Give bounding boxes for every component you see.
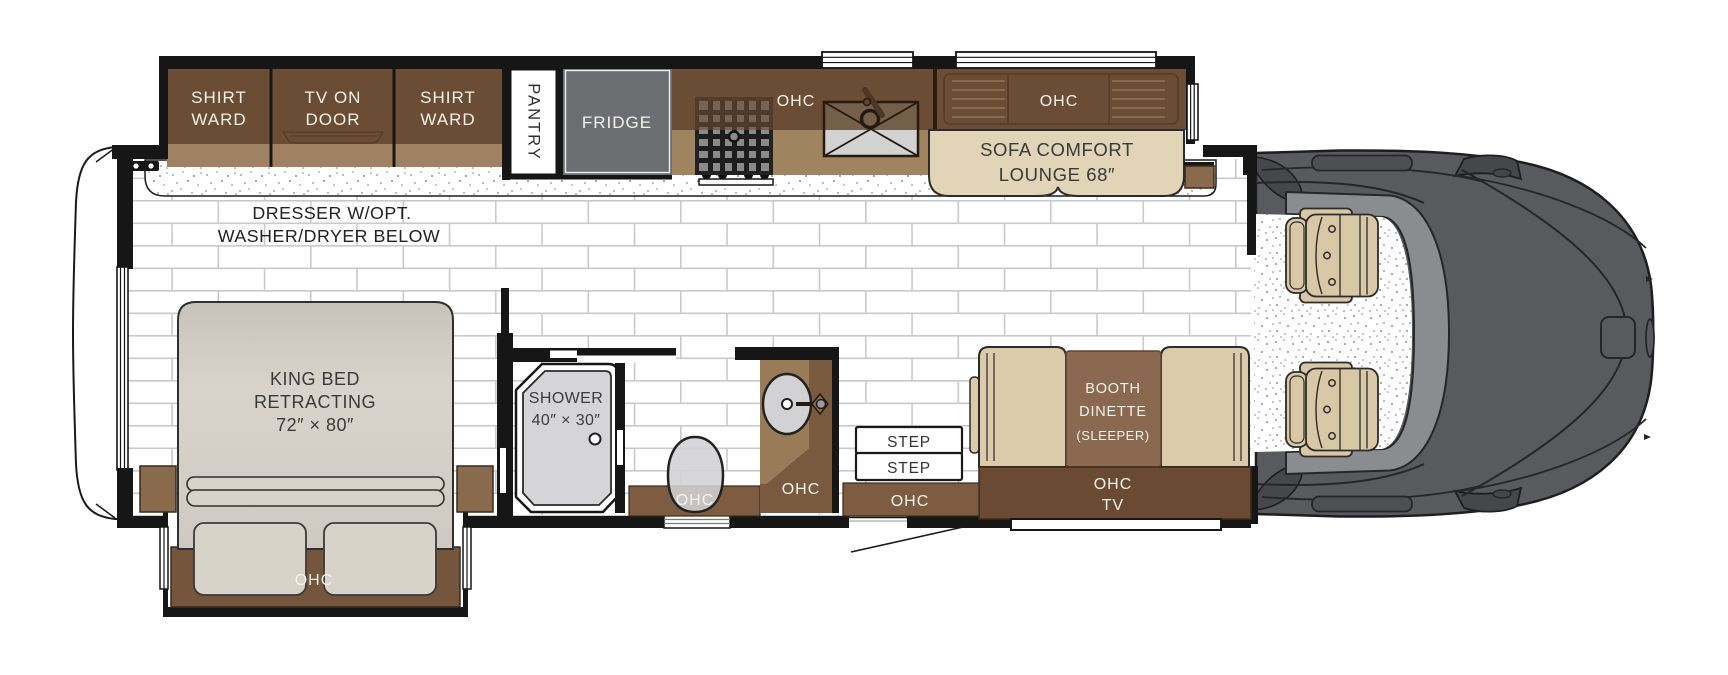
svg-text:DRESSER W/OPT.: DRESSER W/OPT. [252, 203, 411, 223]
svg-text:SHIRT: SHIRT [191, 88, 247, 107]
svg-text:DOOR: DOOR [306, 110, 361, 129]
svg-text:WARD: WARD [191, 110, 246, 129]
svg-text:SOFA COMFORT: SOFA COMFORT [980, 139, 1134, 160]
svg-text:OHC: OHC [676, 492, 715, 509]
svg-text:STEP: STEP [887, 460, 931, 477]
svg-text:TV: TV [1102, 497, 1124, 514]
svg-text:OHC: OHC [891, 493, 930, 510]
svg-text:PANTRY: PANTRY [525, 83, 543, 160]
svg-text:DINETTE: DINETTE [1079, 404, 1147, 420]
svg-text:WASHER/DRYER BELOW: WASHER/DRYER BELOW [218, 226, 440, 246]
svg-text:OHC: OHC [1094, 476, 1133, 493]
svg-text:OHC: OHC [782, 481, 821, 498]
svg-text:RETRACTING: RETRACTING [254, 392, 376, 412]
svg-text:KING BED: KING BED [270, 369, 360, 389]
svg-text:FRIDGE: FRIDGE [582, 113, 652, 132]
svg-text:SHIRT: SHIRT [420, 88, 476, 107]
svg-text:40″ × 30″: 40″ × 30″ [532, 412, 601, 429]
svg-text:TV ON: TV ON [305, 88, 362, 107]
svg-text:OHC: OHC [1040, 93, 1079, 110]
svg-text:WARD: WARD [420, 110, 475, 129]
svg-text:(SLEEPER): (SLEEPER) [1076, 428, 1149, 443]
svg-text:LOUNGE 68″: LOUNGE 68″ [999, 164, 1115, 185]
svg-text:BOOTH: BOOTH [1085, 381, 1141, 397]
svg-text:OHC: OHC [295, 572, 334, 589]
svg-text:OHC: OHC [777, 93, 816, 110]
svg-text:72″ × 80″: 72″ × 80″ [276, 415, 354, 435]
svg-text:SHOWER: SHOWER [529, 390, 603, 407]
svg-text:STEP: STEP [887, 434, 931, 451]
